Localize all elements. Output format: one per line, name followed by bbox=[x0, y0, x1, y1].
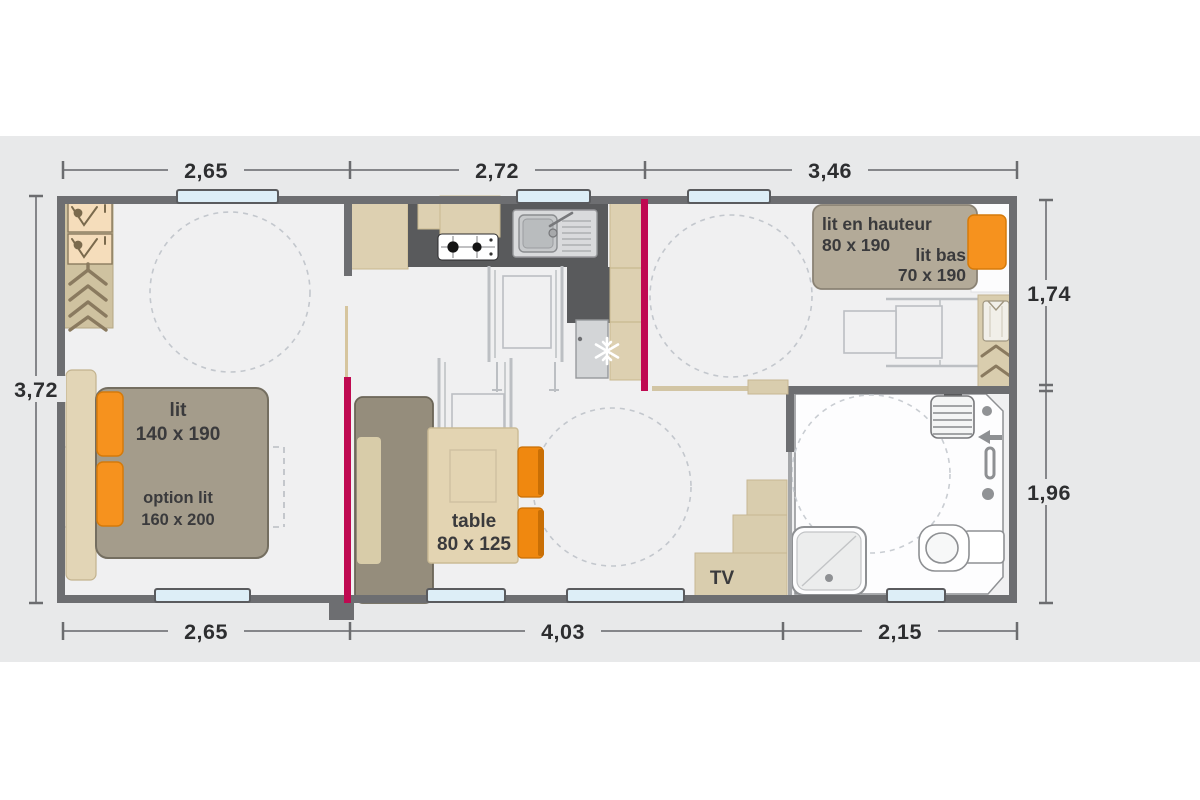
bunk-bed-size-label: 80 x 190 bbox=[822, 235, 890, 255]
dim-bottom-1: 2,65 bbox=[184, 620, 228, 644]
dim-bottom-2: 4,03 bbox=[541, 620, 585, 644]
entry-step bbox=[329, 603, 354, 620]
door-strip bbox=[345, 306, 348, 378]
dim-right-1: 1,74 bbox=[1027, 282, 1071, 306]
sofa bbox=[355, 397, 433, 603]
wardrobe-bedroom1 bbox=[61, 198, 113, 330]
shirt-icon bbox=[983, 301, 1009, 341]
bathroom bbox=[792, 391, 1004, 595]
sink-icon bbox=[513, 210, 597, 257]
washbasin-icon bbox=[931, 391, 974, 438]
low-bed-label: lit bas bbox=[915, 245, 966, 265]
window bbox=[155, 589, 250, 602]
dim-left: 3,72 bbox=[14, 378, 58, 402]
sliding-door bbox=[344, 377, 351, 603]
window bbox=[427, 589, 505, 602]
dim-top-2: 2,72 bbox=[475, 159, 519, 183]
table-label: table bbox=[452, 511, 496, 532]
double-bed bbox=[66, 370, 268, 580]
chair-icon bbox=[518, 447, 544, 497]
window bbox=[177, 190, 278, 203]
window bbox=[567, 589, 684, 602]
partition-ledge bbox=[652, 386, 750, 391]
floor-plan: 2,65 2,72 3,46 2,65 4,03 2,15 3,72 1,74 … bbox=[0, 0, 1200, 800]
kitchen-cabinet bbox=[345, 203, 408, 269]
tv-label: TV bbox=[710, 568, 735, 589]
low-bed-size-label: 70 x 190 bbox=[898, 265, 966, 285]
bathroom-left-wall-thin bbox=[788, 452, 792, 595]
table-size-label: 80 x 125 bbox=[437, 534, 511, 555]
dim-right-2: 1,96 bbox=[1027, 481, 1071, 505]
bed-option-size-label: 160 x 200 bbox=[141, 511, 214, 529]
bathroom-top-wall bbox=[783, 386, 1017, 394]
pillow-icon bbox=[97, 462, 123, 526]
wall-fixture-dot bbox=[982, 488, 994, 500]
window bbox=[688, 190, 770, 203]
bed-label: lit bbox=[170, 400, 188, 421]
desk-chair-icon bbox=[844, 311, 896, 353]
tall-cabinet bbox=[610, 203, 642, 380]
bed-size-label: 140 x 190 bbox=[136, 424, 221, 445]
dim-top-1: 2,65 bbox=[184, 159, 228, 183]
wall-fixture-dot bbox=[982, 406, 992, 416]
window bbox=[517, 190, 590, 203]
sliding-door bbox=[641, 199, 648, 391]
bed-option-label: option lit bbox=[143, 489, 213, 507]
chair-icon bbox=[518, 508, 544, 558]
headboard bbox=[66, 370, 96, 580]
bathroom-left-wall bbox=[786, 390, 794, 452]
upper-cabinet bbox=[418, 203, 440, 229]
bunk-bed-label: lit en hauteur bbox=[822, 214, 932, 234]
stove-icon bbox=[438, 234, 498, 260]
dim-top-3: 3,46 bbox=[808, 159, 852, 183]
pillow-icon bbox=[97, 392, 123, 456]
shower-icon bbox=[792, 527, 866, 595]
partition-wall bbox=[344, 196, 352, 276]
window bbox=[887, 589, 945, 602]
shelf-ledge bbox=[748, 380, 788, 394]
wardrobe-bedroom2 bbox=[978, 295, 1013, 388]
dim-bottom-3: 2,15 bbox=[878, 620, 922, 644]
pillow-icon bbox=[968, 215, 1006, 269]
